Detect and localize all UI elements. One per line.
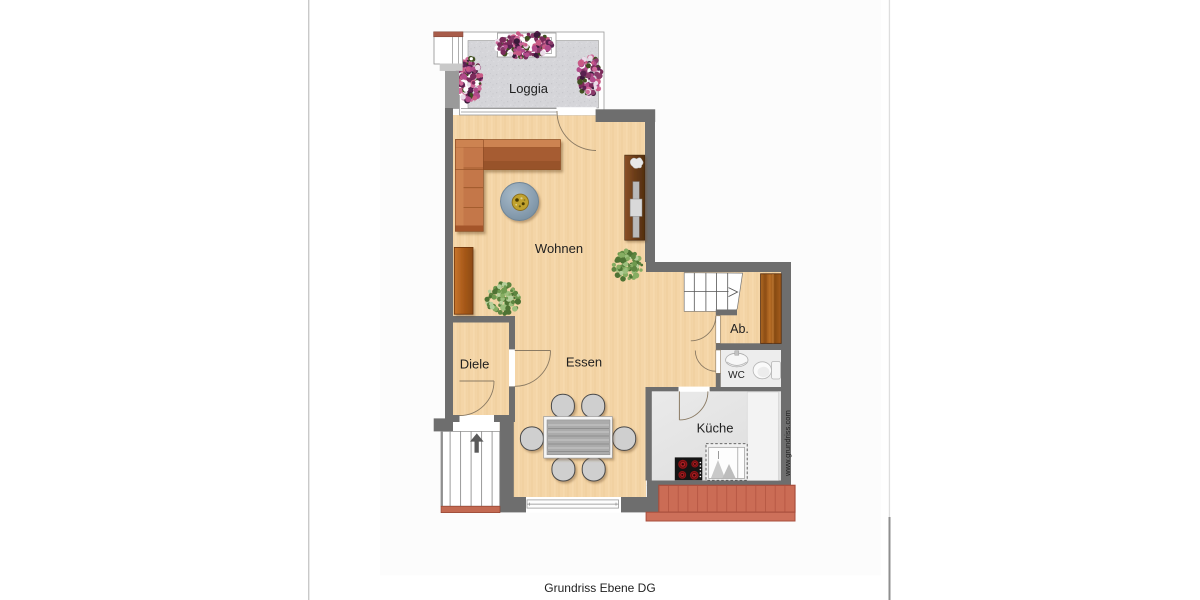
svg-text:Küche: Küche	[697, 421, 734, 436]
svg-text:Wohnen: Wohnen	[535, 241, 583, 256]
svg-text:Essen: Essen	[566, 355, 602, 370]
svg-text:Ab.: Ab.	[730, 322, 749, 336]
svg-text:Loggia: Loggia	[509, 81, 549, 96]
svg-text:Grundriss Ebene DG: Grundriss Ebene DG	[544, 581, 655, 595]
svg-text:WC: WC	[728, 370, 745, 381]
svg-text:Diele: Diele	[460, 357, 490, 372]
svg-text:www.grundriss.com: www.grundriss.com	[783, 410, 792, 477]
